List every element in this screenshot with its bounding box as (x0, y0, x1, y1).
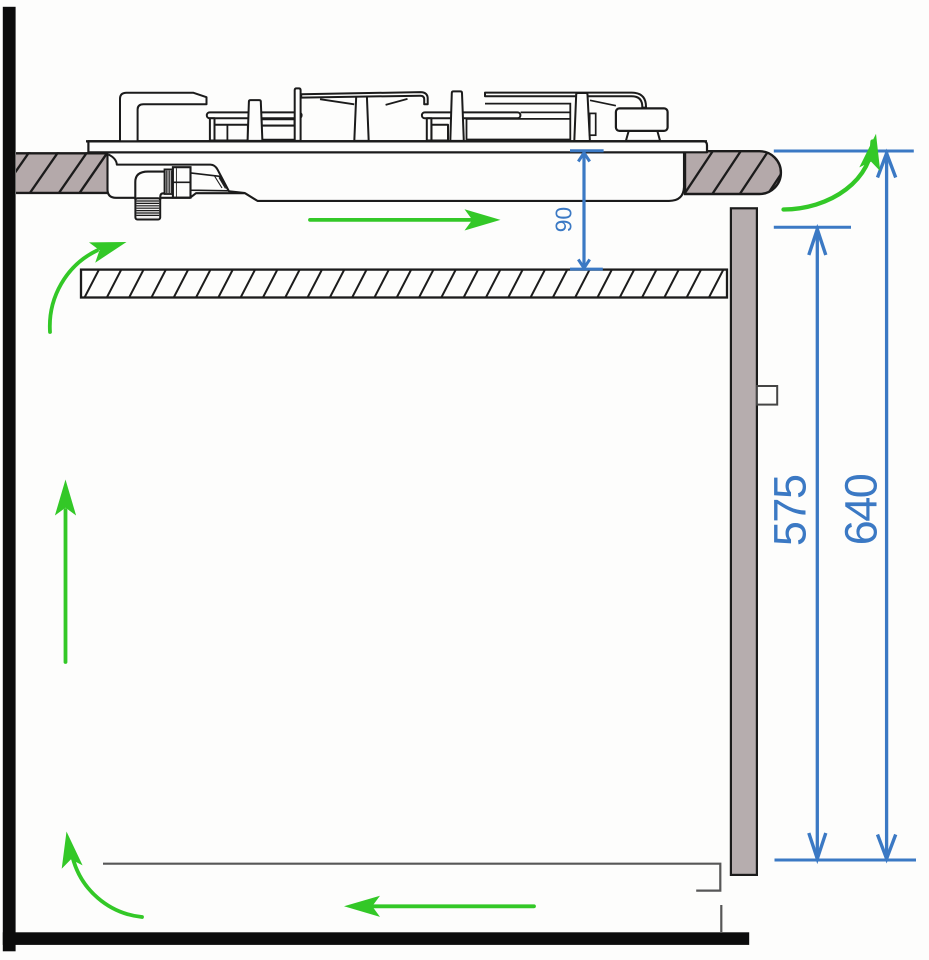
svg-text:640: 640 (835, 474, 886, 545)
svg-text:90: 90 (551, 207, 577, 233)
svg-text:575: 575 (764, 475, 815, 546)
